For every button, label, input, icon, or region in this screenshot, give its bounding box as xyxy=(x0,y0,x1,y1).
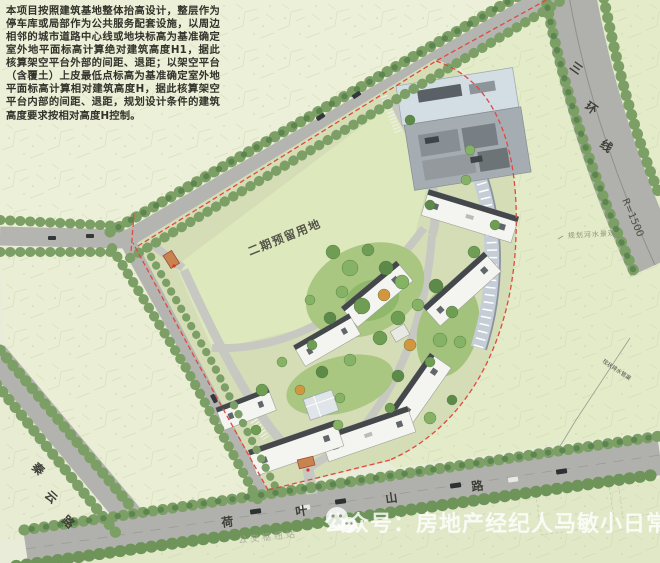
heyeshan-road-label-char: 叶 xyxy=(294,502,308,519)
heyeshan-road-label-char: 山 xyxy=(384,489,398,506)
design-note-text: 本项目按照建筑基地整体抬高设计，整层作为停车库或局部作为公共服务配套设施，以周边… xyxy=(6,5,220,123)
heyeshan-road-label-char: 荷 xyxy=(219,513,234,530)
site-plan-screenshot: 三 环 线 R=1500 秦 云 路 荷 叶 山 路 二期预留用地 规划河水景观… xyxy=(0,0,660,563)
